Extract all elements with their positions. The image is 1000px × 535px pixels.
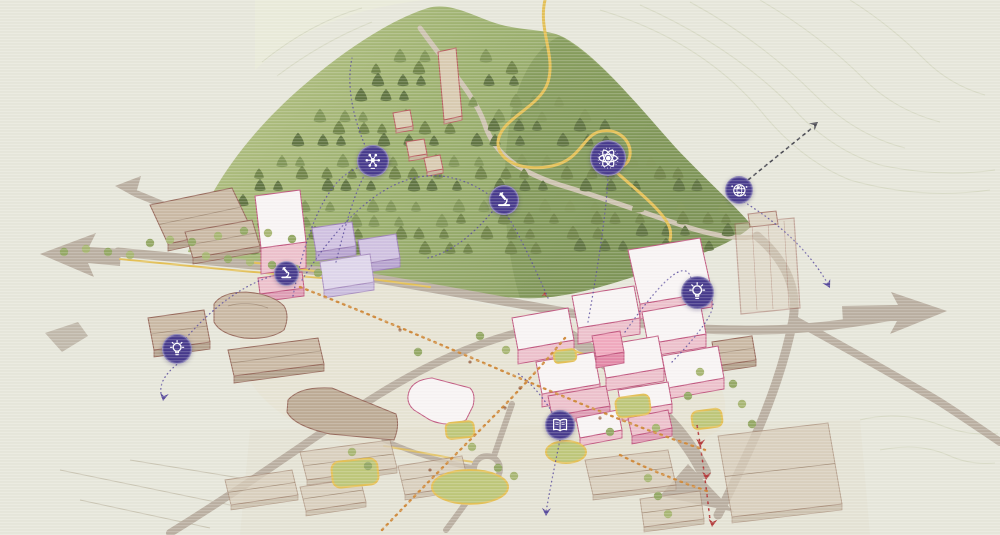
lightbulb-icon[interactable] [681,276,714,309]
microscope-icon[interactable] [489,185,519,215]
masterplan-map [0,0,1000,535]
trajectory-arrowhead-dark [809,118,821,130]
trajectory-arrowhead-purple [159,392,169,401]
lightbulb-icon[interactable] [162,334,192,364]
trajectory-arrowhead-purple [822,279,834,290]
brain-network-icon[interactable] [357,145,389,177]
globe-network-icon[interactable] [725,176,753,204]
open-book-icon[interactable] [545,410,575,440]
masterplan-canvas [0,0,1000,535]
microscope-icon[interactable] [274,261,299,286]
atom-icon[interactable] [590,140,626,176]
